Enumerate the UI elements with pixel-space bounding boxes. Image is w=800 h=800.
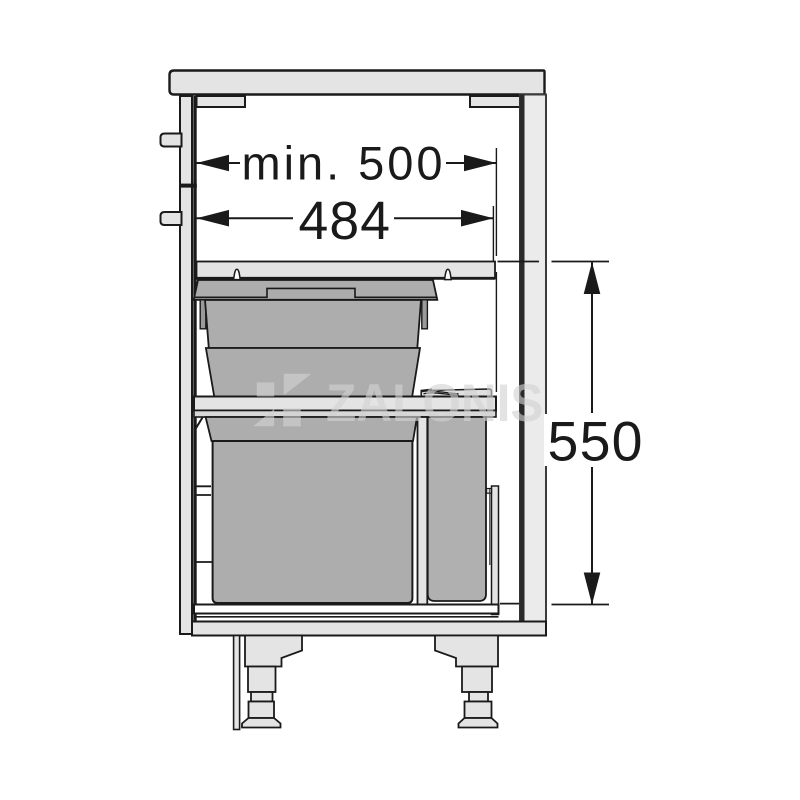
svg-text:550: 550 — [548, 411, 643, 473]
svg-text:484: 484 — [299, 192, 391, 251]
svg-text:ZALONIS: ZALONIS — [326, 374, 544, 433]
svg-text:min. 500: min. 500 — [242, 137, 443, 190]
